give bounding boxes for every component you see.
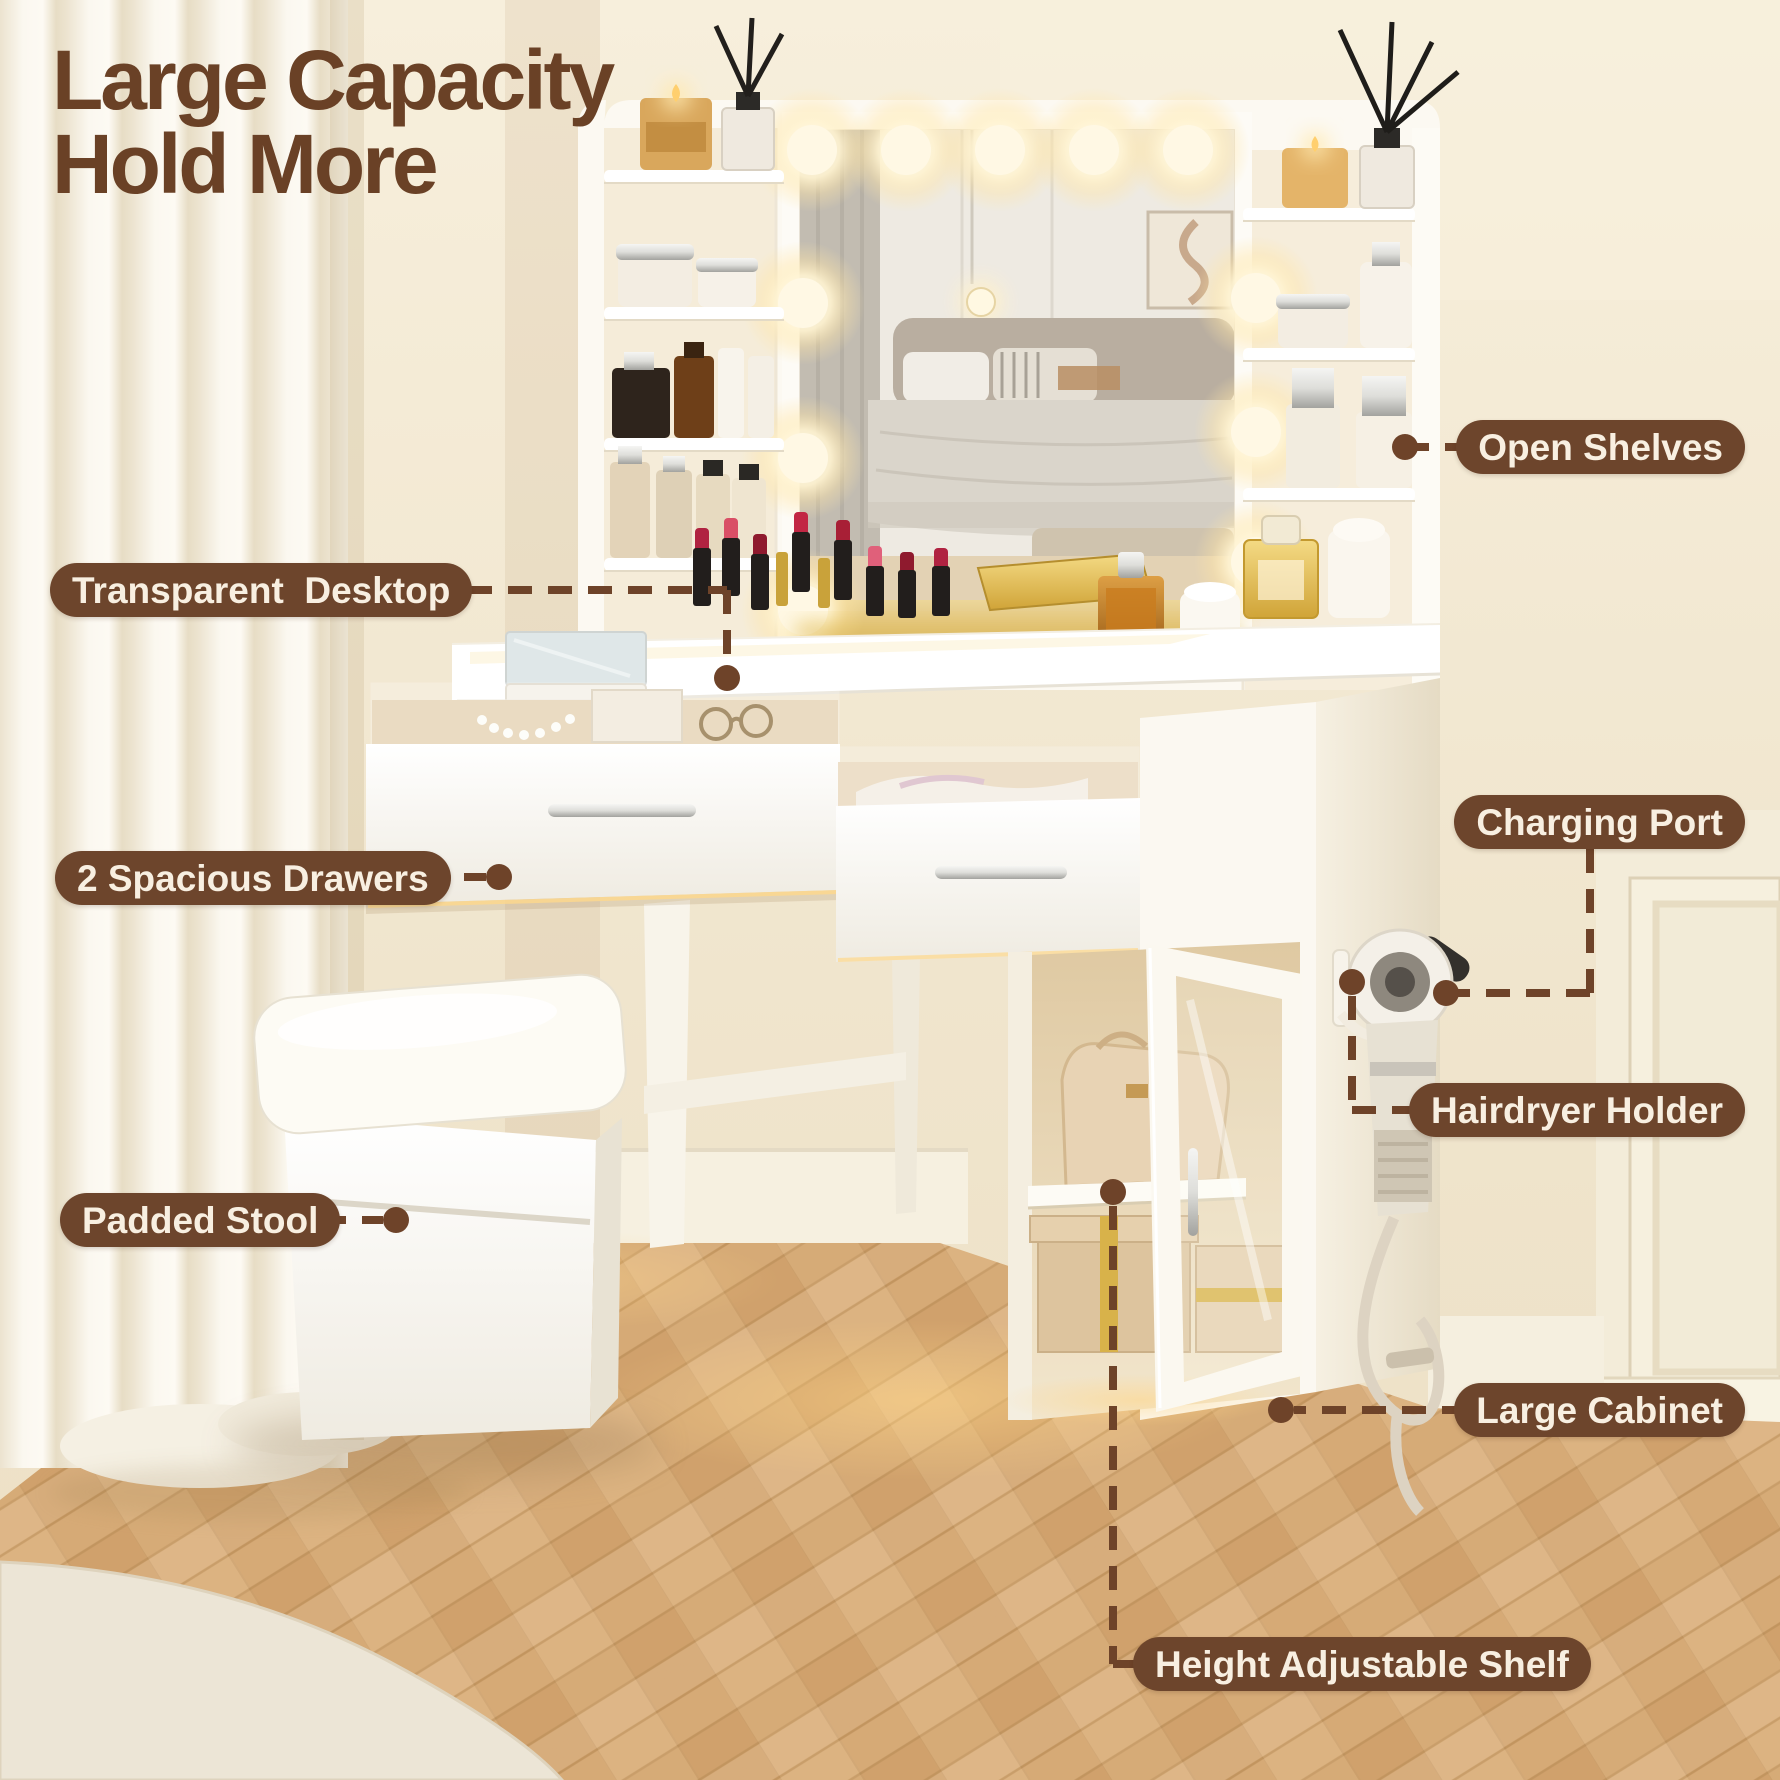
cabinet-glass-door-open <box>1146 944 1302 1412</box>
label-padded-stool: Padded Stool <box>60 1193 340 1247</box>
product-infographic: Large Capacity Hold More Open Shelves Tr… <box>0 0 1780 1780</box>
drawer-handle <box>935 866 1067 879</box>
drawer-handle <box>548 804 696 817</box>
label-hairdryer-holder: Hairdryer Holder <box>1409 1083 1745 1137</box>
label-large-cabinet: Large Cabinet <box>1454 1383 1745 1437</box>
label-open-shelves: Open Shelves <box>1456 420 1745 474</box>
label-2-spacious-drawers: 2 Spacious Drawers <box>55 851 451 905</box>
headline-line-2: Hold More <box>52 122 612 206</box>
right-drawer-open <box>836 748 1140 962</box>
label-transparent-desktop: Transparent Desktop <box>50 563 472 617</box>
headline: Large Capacity Hold More <box>52 38 612 206</box>
label-charging-port: Charging Port <box>1454 795 1745 849</box>
label-height-adjustable-shelf: Height Adjustable Shelf <box>1133 1637 1591 1691</box>
headline-line-1: Large Capacity <box>52 38 612 122</box>
door-handle <box>1188 1148 1198 1236</box>
